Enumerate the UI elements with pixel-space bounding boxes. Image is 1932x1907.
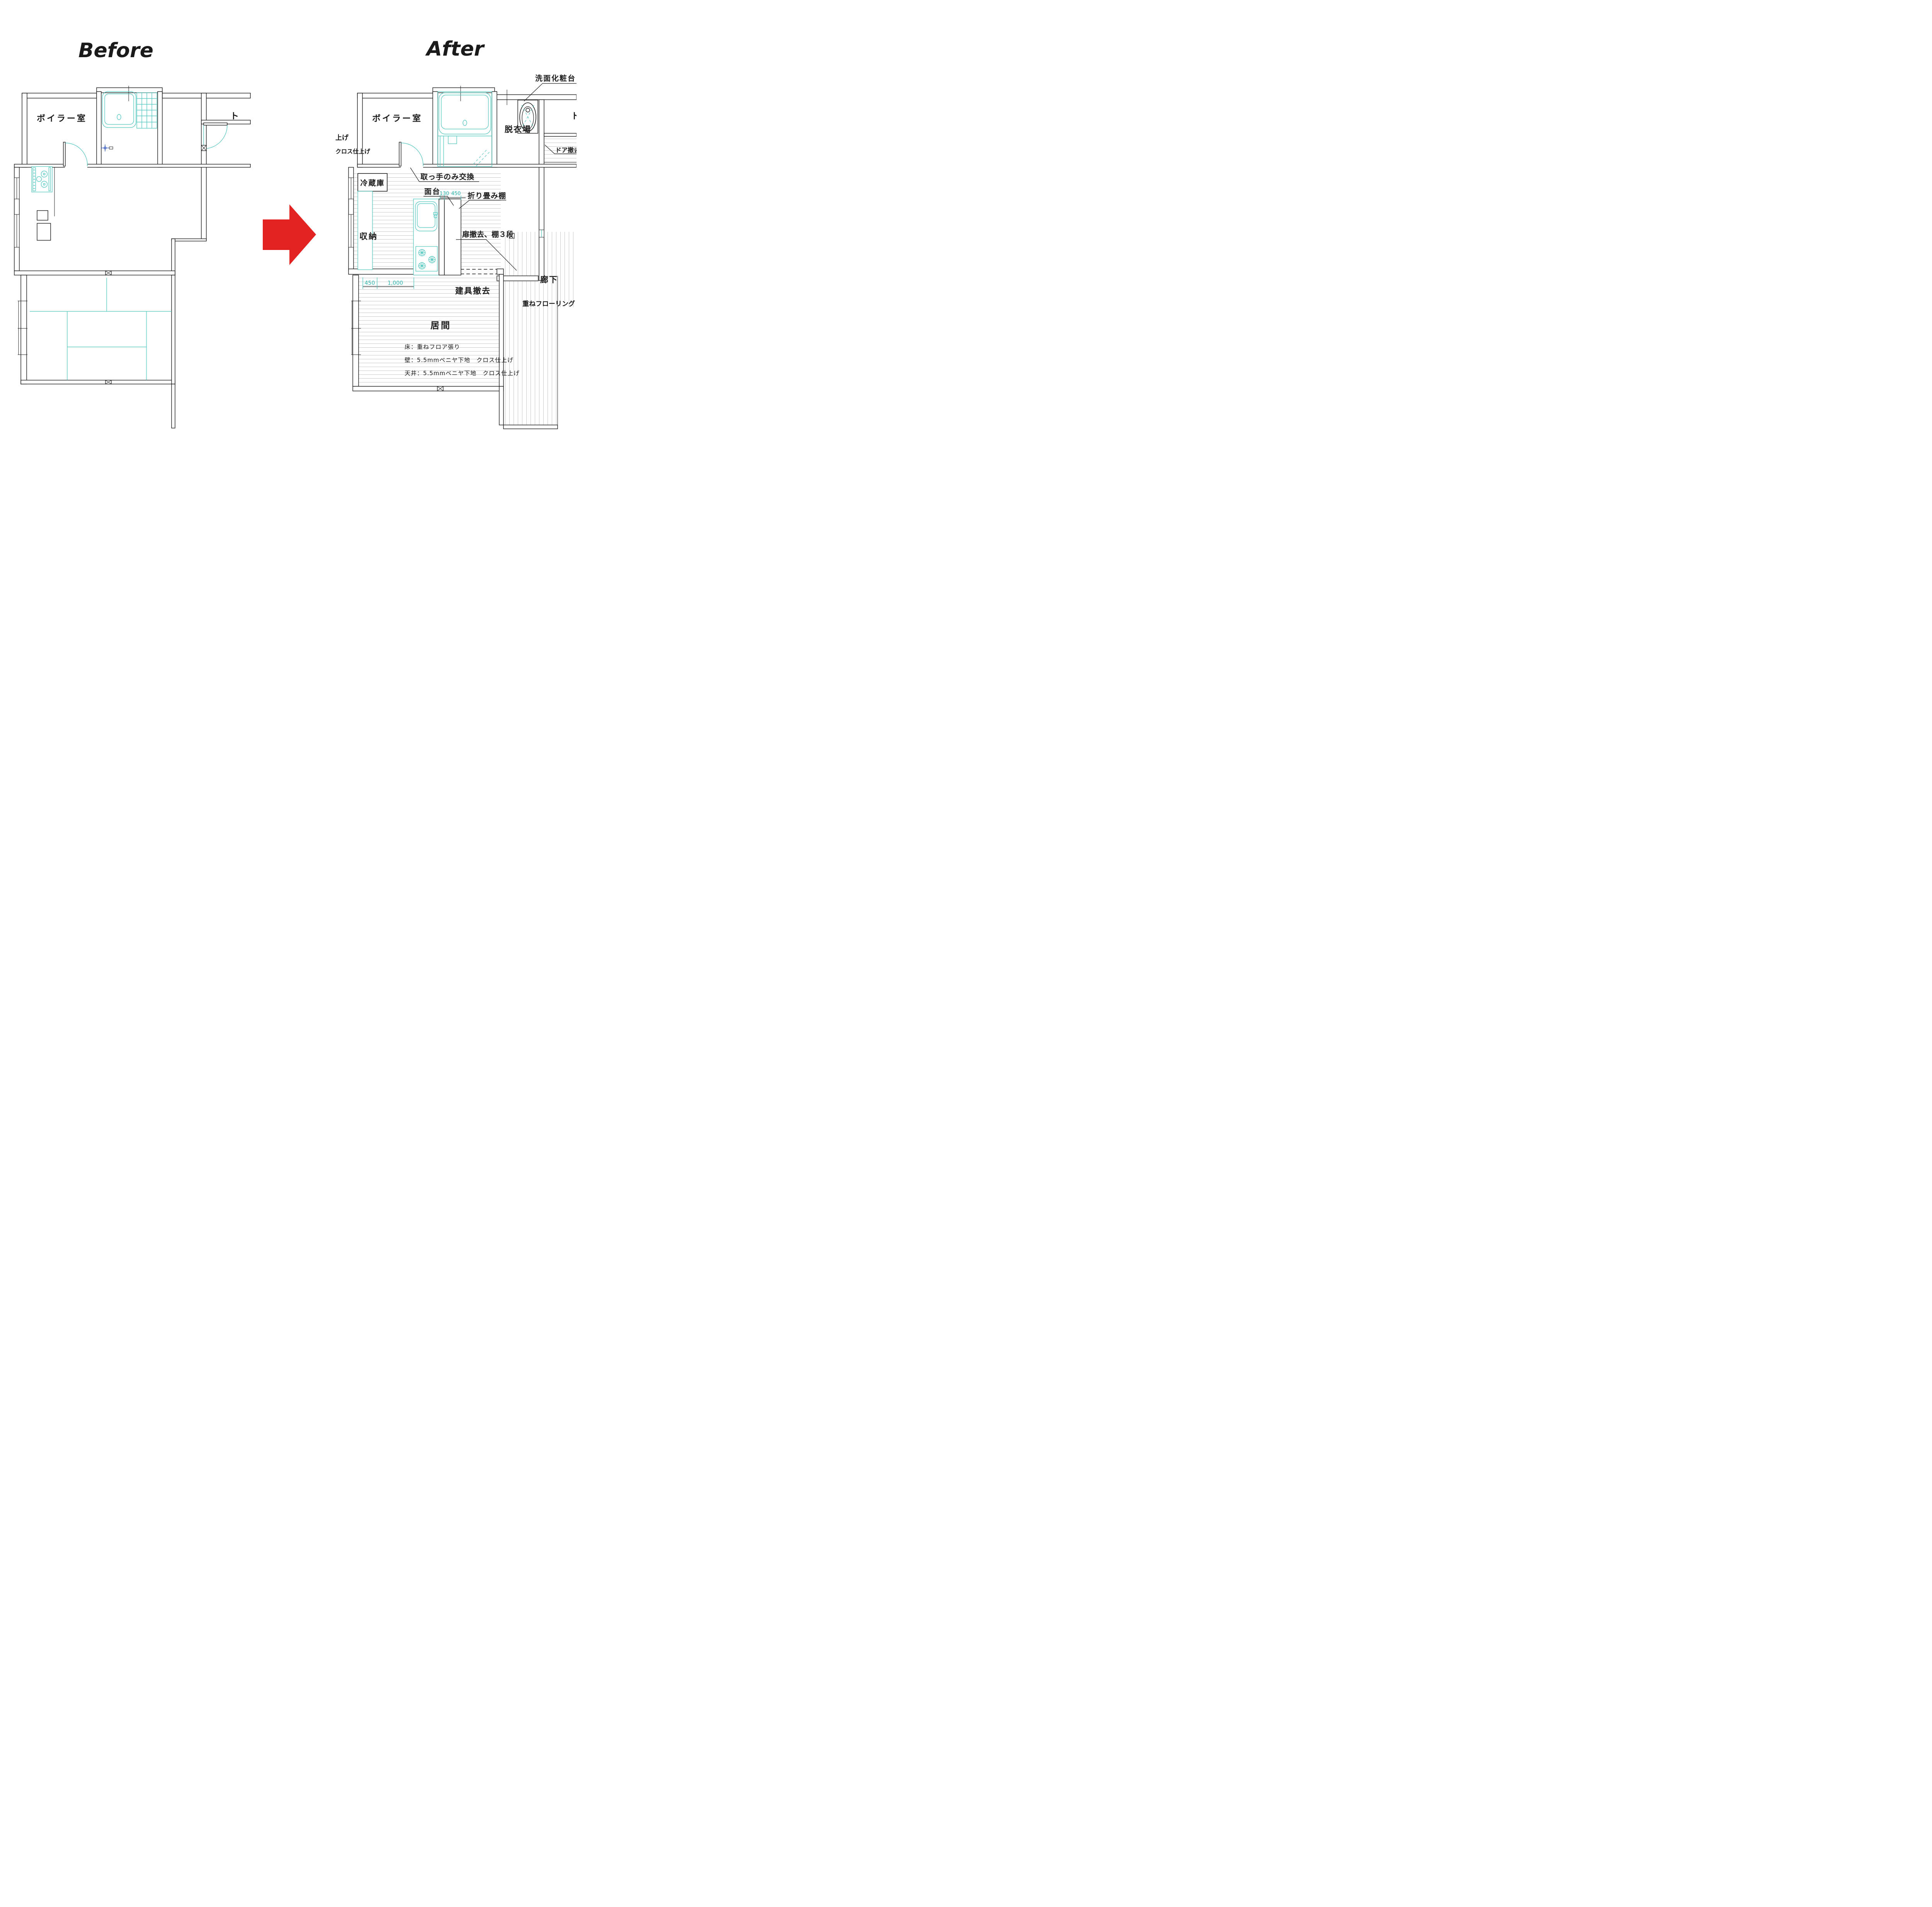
dim-450: 450 xyxy=(365,280,375,286)
flooring-hatch-corridor xyxy=(503,307,558,425)
note-handle-only: 取っ手のみ交換 xyxy=(420,172,474,181)
burner xyxy=(418,262,425,269)
wall xyxy=(544,133,577,136)
before-plan: ボイラー室 ト xyxy=(14,86,250,428)
room-label-boiler: ボイラー室 xyxy=(37,114,87,124)
pillar-post xyxy=(201,145,206,151)
bathtub-drain xyxy=(117,114,121,120)
wall xyxy=(158,92,162,167)
wall xyxy=(433,88,495,93)
before-title: Before xyxy=(78,39,153,62)
pillar-post xyxy=(437,386,443,391)
arrow-right-icon xyxy=(263,204,316,265)
vanity-label: 洗面化粧台 xyxy=(535,74,576,83)
door-leaf xyxy=(399,142,401,166)
stove-sink-unit xyxy=(32,167,52,192)
wall-stub xyxy=(499,386,503,425)
wall xyxy=(492,92,497,167)
counter-label: 面台 xyxy=(424,187,440,196)
wall xyxy=(14,271,175,275)
note-raise: 上げ xyxy=(335,134,349,142)
room-label-toilet-partial: ト xyxy=(230,112,239,121)
wall xyxy=(22,93,97,98)
folding-shelf xyxy=(444,199,461,275)
room-label-boiler: ボイラー室 xyxy=(372,114,422,124)
burner xyxy=(429,256,435,263)
room-label-living: 居間 xyxy=(430,321,451,331)
wall xyxy=(21,275,27,384)
note-cloth-finish: クロス仕上げ xyxy=(335,148,371,155)
door-leaf xyxy=(63,142,65,166)
window xyxy=(14,214,19,247)
pillar-post xyxy=(105,271,111,275)
window xyxy=(349,214,354,247)
door-opening xyxy=(401,164,423,168)
wall xyxy=(433,92,438,167)
floorplan-canvas: Before After xyxy=(0,0,577,477)
pillar-post xyxy=(105,380,111,384)
note-overlay-flooring: 重ねフローリング xyxy=(522,300,575,308)
bathtub xyxy=(102,92,136,127)
counter-strip xyxy=(439,199,444,275)
counter-box xyxy=(37,223,51,240)
wall xyxy=(539,100,544,280)
door-opening xyxy=(65,164,87,168)
wall xyxy=(357,93,438,98)
note-door-removal: ドア撤去 xyxy=(555,146,577,154)
storage-area xyxy=(358,191,372,270)
wall-stub xyxy=(172,384,175,428)
wall xyxy=(172,275,175,384)
dim-450-shelf: 450 xyxy=(451,191,461,197)
note-fitting-removal: 建具撤去 xyxy=(455,286,491,296)
wall xyxy=(357,164,577,167)
note-door-shelf: 扉撤去、棚３段 xyxy=(462,230,514,239)
door-leaf xyxy=(204,123,227,125)
wall xyxy=(22,93,27,167)
bath-tile-grid xyxy=(137,93,157,128)
wall xyxy=(97,88,162,93)
spec-ceiling: 天井：5.5mmベニヤ下地 クロス仕上げ xyxy=(405,370,520,377)
wall xyxy=(503,425,558,429)
wall xyxy=(353,275,359,386)
wall xyxy=(497,269,503,274)
fridge-label: 冷蔵庫 xyxy=(360,178,384,187)
door-swing-arc xyxy=(401,143,423,166)
room-label-toilet-partial: ト xyxy=(571,112,577,121)
tatami-lines xyxy=(30,278,172,380)
room-label-corridor: 廊下 xyxy=(540,275,558,284)
before-after-floorplan: Before After xyxy=(0,0,577,477)
wall xyxy=(21,380,175,384)
after-title: After xyxy=(425,37,485,61)
dim-1000: 1,000 xyxy=(388,280,403,286)
after-plan: 450 1,000 130 450 洗面化粧台 ボイラー室 脱衣場 ト 上げ ク… xyxy=(335,74,577,429)
window xyxy=(349,178,354,199)
room-label-dressing: 脱衣場 xyxy=(505,125,531,134)
wall xyxy=(172,239,206,241)
door-swing-arc xyxy=(65,143,87,166)
wall xyxy=(353,386,503,391)
wall xyxy=(172,239,175,275)
counter-box xyxy=(37,211,48,220)
window xyxy=(539,230,544,237)
dim-130: 130 xyxy=(440,191,449,197)
wall xyxy=(97,92,101,167)
storage-label: 収納 xyxy=(359,232,378,241)
wall xyxy=(357,93,362,167)
faucet-icon xyxy=(101,144,113,151)
door-swing-arc xyxy=(204,125,227,149)
kitchen-unit xyxy=(413,199,439,275)
burner xyxy=(418,249,425,256)
unit-bath xyxy=(438,92,492,167)
window xyxy=(14,178,19,199)
folding-shelf-label: 折り畳み棚 xyxy=(468,191,506,200)
spec-floor: 床：重ねフロア張り xyxy=(405,343,460,350)
spec-wall: 壁：5.5mmベニヤ下地 クロス仕上げ xyxy=(405,357,514,364)
